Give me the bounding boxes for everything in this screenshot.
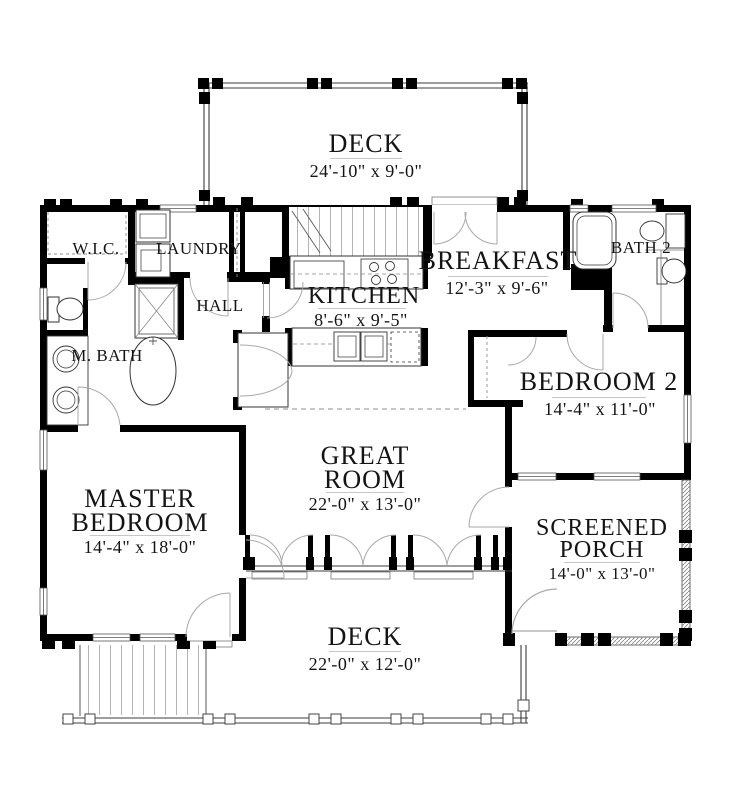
room-label-hall: HALL xyxy=(196,297,243,314)
porch-label-rule xyxy=(564,562,640,563)
porch-line1: SCREENED xyxy=(536,517,668,539)
staircase xyxy=(289,207,423,256)
room-dims-great-room: 22'-0" x 13'-0" xyxy=(309,495,422,513)
bedroom2-label-rule xyxy=(552,397,646,398)
room-dims-deck-top: 24'-10" x 9'-0" xyxy=(310,162,423,180)
room-label-bath2: BATH 2 xyxy=(611,239,671,256)
floor-plan: DECK 24'-10" x 9'-0" W.I.C. LAUNDRY HALL… xyxy=(0,0,744,809)
room-dims-deck-bottom: 22'-0" x 12'-0" xyxy=(309,655,422,673)
room-dims-porch: 14'-0" x 13'-0" xyxy=(549,565,656,582)
room-dims-kitchen: 8'-6" x 9'-5" xyxy=(314,311,408,329)
porch-line2: PORCH xyxy=(536,539,668,561)
pantry-niche xyxy=(238,333,292,407)
room-label-porch: SCREENED PORCH xyxy=(536,517,668,561)
room-label-wic: W.I.C. xyxy=(72,240,119,257)
room-label-master-bedroom: MASTER BEDROOM xyxy=(71,487,208,535)
room-label-mbath: M. BATH xyxy=(71,347,143,364)
great-room-label-rule xyxy=(326,492,404,493)
room-label-deck-bottom: DECK xyxy=(328,624,403,650)
room-label-great-room: GREAT ROOM xyxy=(321,444,410,492)
breakfast-door-sill xyxy=(432,197,497,205)
room-dims-breakfast: 12'-3" x 9'-6" xyxy=(445,279,548,297)
kitchen-island xyxy=(292,328,421,366)
master-line2: BEDROOM xyxy=(71,511,208,535)
room-label-bedroom2: BEDROOM 2 xyxy=(520,369,679,395)
room-label-kitchen: KITCHEN xyxy=(308,284,420,308)
room-label-breakfast: BREAKFAST xyxy=(419,248,578,274)
deck-bottom-label-rule xyxy=(329,651,401,652)
bathtub-bath2 xyxy=(573,212,616,269)
bottom-deck xyxy=(42,641,529,724)
great-room-line2: ROOM xyxy=(321,468,410,492)
kitchen-label-rule xyxy=(318,308,406,309)
breakfast-label-rule xyxy=(448,276,548,277)
room-label-deck-top: DECK xyxy=(329,131,404,157)
master-label-rule xyxy=(90,535,190,536)
room-label-laundry: LAUNDRY xyxy=(156,240,242,257)
room-dims-bedroom2: 14'-4" x 11'-0" xyxy=(544,400,656,418)
shower xyxy=(135,284,178,338)
mbath-toilet xyxy=(48,297,83,322)
deck-top-label-rule xyxy=(330,158,402,159)
porch-screen-walls xyxy=(503,480,692,646)
room-dims-master: 14'-4" x 18'-0" xyxy=(84,538,197,556)
